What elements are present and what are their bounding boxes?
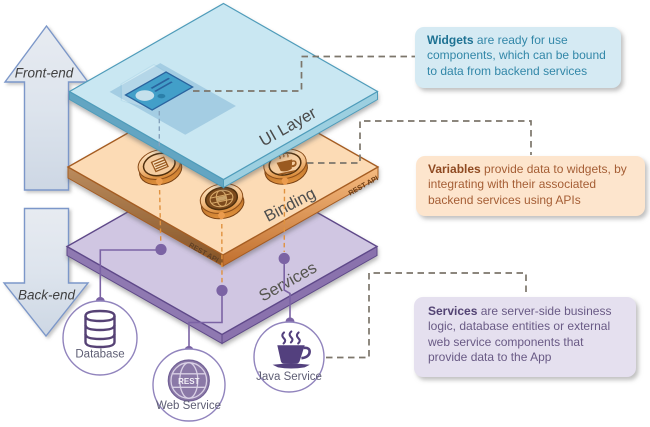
svg-text:Database: Database [75, 349, 124, 361]
svg-text:Front-end: Front-end [15, 66, 74, 81]
svg-text:Back-end: Back-end [18, 288, 76, 303]
svg-text:REST: REST [178, 377, 199, 386]
svg-text:Java Service: Java Service [256, 371, 322, 383]
svg-text:Web Service: Web Service [156, 400, 221, 412]
